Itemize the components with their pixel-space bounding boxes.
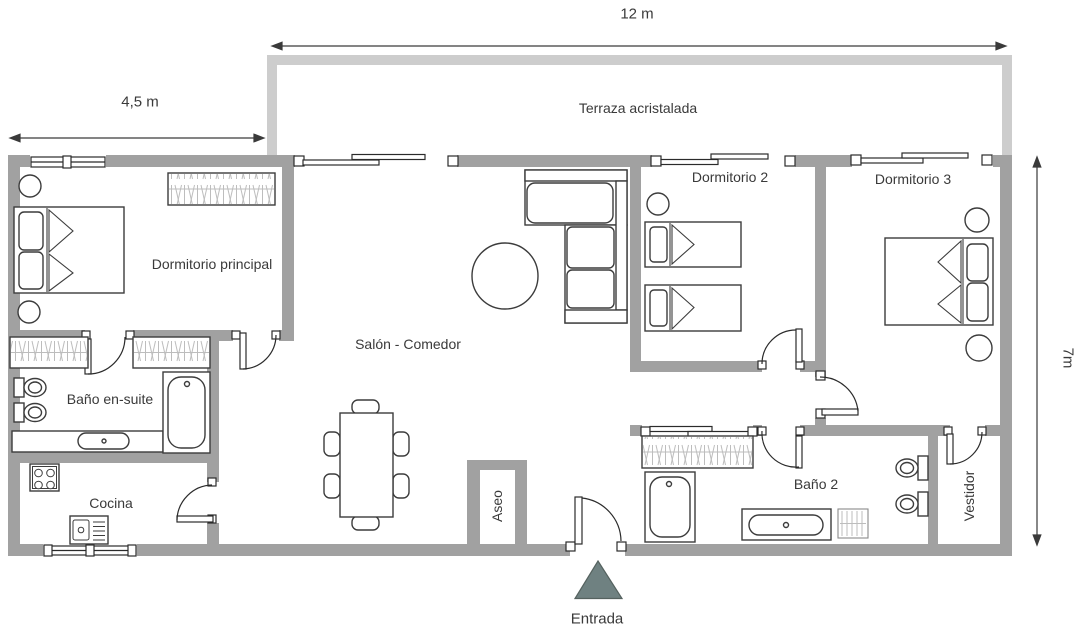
- door-ensuite: [82, 331, 134, 374]
- single-bed-1: [645, 222, 741, 267]
- room-label-bedroom2: Dormitorio 2: [692, 170, 768, 184]
- dining-table: [340, 413, 393, 517]
- nightstand: [965, 208, 989, 232]
- nightstand: [18, 301, 40, 323]
- wardrobe-closet-right: [133, 337, 210, 368]
- door-kitchen: [177, 478, 216, 523]
- bathtub-bathroom2: [645, 472, 695, 542]
- bidet: [896, 492, 928, 516]
- dining-chair: [352, 516, 379, 530]
- door-dressing-room: [944, 427, 986, 464]
- dimension-arrow-top: [272, 42, 1006, 50]
- dining-chair: [324, 474, 340, 498]
- wardrobe-closet-left: [10, 337, 88, 368]
- towel-radiator: [838, 509, 868, 538]
- vanity-sink-bathroom2: [742, 509, 831, 540]
- coffee-table: [472, 243, 538, 309]
- room-label-bathroom2: Baño 2: [794, 477, 838, 491]
- toilet: [896, 456, 928, 480]
- cooktop: [30, 464, 59, 491]
- room-label-guest-toilet: Aseo: [490, 490, 504, 522]
- furniture: [10, 170, 993, 544]
- dining-chair: [352, 400, 379, 414]
- dining-chair: [393, 432, 409, 456]
- room-label-ensuite-bath: Baño en-suite: [67, 392, 153, 406]
- kitchen-sink: [70, 516, 108, 544]
- room-label-dressing-room: Vestidor: [962, 471, 976, 522]
- bathtub-ensuite: [163, 372, 210, 453]
- double-bed-bedroom3: [885, 238, 993, 325]
- room-label-living-dining: Salón - Comedor: [355, 337, 461, 351]
- bidet: [14, 403, 46, 422]
- dimension-label-plan-height: 7m: [1061, 348, 1076, 369]
- door-bathroom2: [758, 427, 804, 468]
- nightstand: [647, 193, 669, 215]
- single-bed-2: [645, 285, 741, 331]
- sliding-door-living: [294, 155, 458, 167]
- wardrobe-master-top: [168, 173, 275, 205]
- dimension-arrow-left: [10, 134, 264, 142]
- entrance-arrow-icon: [575, 561, 622, 599]
- room-label-kitchen: Cocina: [89, 496, 133, 510]
- dining-chair: [393, 474, 409, 498]
- nightstand: [19, 175, 41, 197]
- door-entrance: [566, 497, 626, 551]
- entrance-label: Entrada: [571, 612, 624, 627]
- vanity-sink: [12, 431, 163, 452]
- door-bedroom3: [816, 371, 858, 418]
- sliding-window-bedroom2: [651, 154, 795, 166]
- window-kitchen: [44, 545, 136, 556]
- room-label-master-bedroom: Dormitorio principal: [152, 257, 273, 271]
- dimension-arrow-right: [1033, 157, 1041, 545]
- door-master-bedroom: [232, 331, 280, 369]
- dining-chair: [324, 432, 340, 456]
- floor-plan: 12 m 4,5 m 7m Terraza acristalada Dormit…: [0, 0, 1082, 632]
- dimension-label-terrace-width: 12 m: [620, 7, 653, 22]
- sliding-doors-closet-bathroom2: [641, 427, 757, 437]
- window-master-bedroom: [31, 156, 105, 168]
- nightstand: [966, 335, 992, 361]
- double-bed-master: [14, 207, 124, 293]
- dimension-label-master-width: 4,5 m: [121, 95, 159, 110]
- door-bedroom2: [758, 329, 804, 369]
- dining-set: [324, 400, 409, 530]
- floor-plan-drawing: [0, 0, 1082, 632]
- corner-sofa: [525, 170, 627, 323]
- sliding-window-bedroom3: [851, 153, 992, 165]
- room-label-terrace: Terraza acristalada: [579, 101, 697, 115]
- toilet: [14, 378, 46, 397]
- room-label-bedroom3: Dormitorio 3: [875, 172, 951, 186]
- wardrobe-closet-bathroom2: [642, 436, 753, 468]
